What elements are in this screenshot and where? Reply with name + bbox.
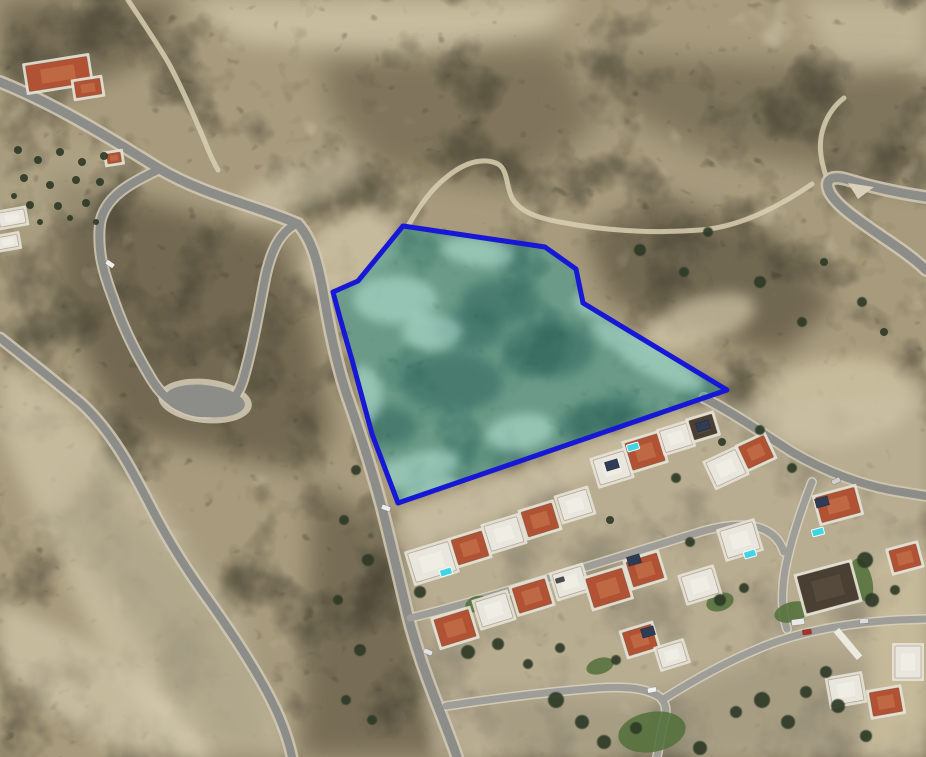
tree [857, 297, 867, 307]
tree [730, 706, 742, 718]
house-white-roof [892, 643, 924, 681]
tree [693, 741, 707, 755]
tree [739, 583, 749, 593]
parked-car [802, 629, 812, 635]
tree [890, 585, 900, 595]
tree [831, 699, 845, 713]
tree [703, 227, 713, 237]
tree [20, 174, 28, 182]
tree [860, 730, 872, 742]
tree [755, 425, 765, 435]
tree [714, 594, 726, 606]
tree [754, 692, 770, 708]
tree [56, 148, 64, 156]
tree [362, 554, 374, 566]
tree [787, 463, 797, 473]
tree [492, 638, 504, 650]
tree [800, 686, 812, 698]
tree [461, 645, 475, 659]
tree [606, 516, 614, 524]
tree [754, 276, 766, 288]
tree [14, 146, 22, 154]
tree [341, 695, 351, 705]
tree [865, 593, 879, 607]
tree [339, 515, 349, 525]
tree [781, 715, 795, 729]
house-terracotta-roof [866, 684, 907, 720]
tree [72, 176, 80, 184]
house-white-roof [825, 671, 868, 709]
tree [67, 215, 73, 221]
tree [597, 735, 611, 749]
tree [523, 659, 533, 669]
tree [367, 715, 377, 725]
tree [54, 202, 62, 210]
roof-ridge [877, 694, 896, 710]
tree [575, 715, 589, 729]
tree [880, 328, 888, 336]
tree [611, 655, 621, 665]
plot-dark-vegetation [400, 352, 504, 412]
tree [26, 201, 34, 209]
tree [93, 219, 99, 225]
tree [718, 438, 726, 446]
roof-ridge [901, 653, 915, 671]
tree [679, 267, 689, 277]
tree [797, 317, 807, 327]
tree [96, 178, 104, 186]
tree [634, 244, 646, 256]
tree [354, 644, 366, 656]
roof-ridge [836, 681, 856, 698]
parked-car [859, 618, 868, 624]
tree [351, 465, 361, 475]
plot-light-ground [402, 314, 462, 350]
tree [82, 199, 90, 207]
tree [34, 156, 42, 164]
plot-dark-vegetation [502, 322, 594, 378]
tree [100, 152, 108, 160]
tree [37, 219, 43, 225]
tree [414, 586, 426, 598]
tree [820, 666, 832, 678]
tree [671, 473, 681, 483]
tree [820, 258, 828, 266]
tree [333, 595, 343, 605]
tree [78, 158, 86, 166]
tree [46, 181, 54, 189]
tree [11, 193, 17, 199]
tree [685, 537, 695, 547]
tree [548, 692, 564, 708]
satellite-screenshot [0, 0, 926, 757]
satellite-map[interactable] [0, 0, 926, 757]
tree [857, 552, 873, 568]
tree [630, 722, 642, 734]
tree [555, 643, 565, 653]
